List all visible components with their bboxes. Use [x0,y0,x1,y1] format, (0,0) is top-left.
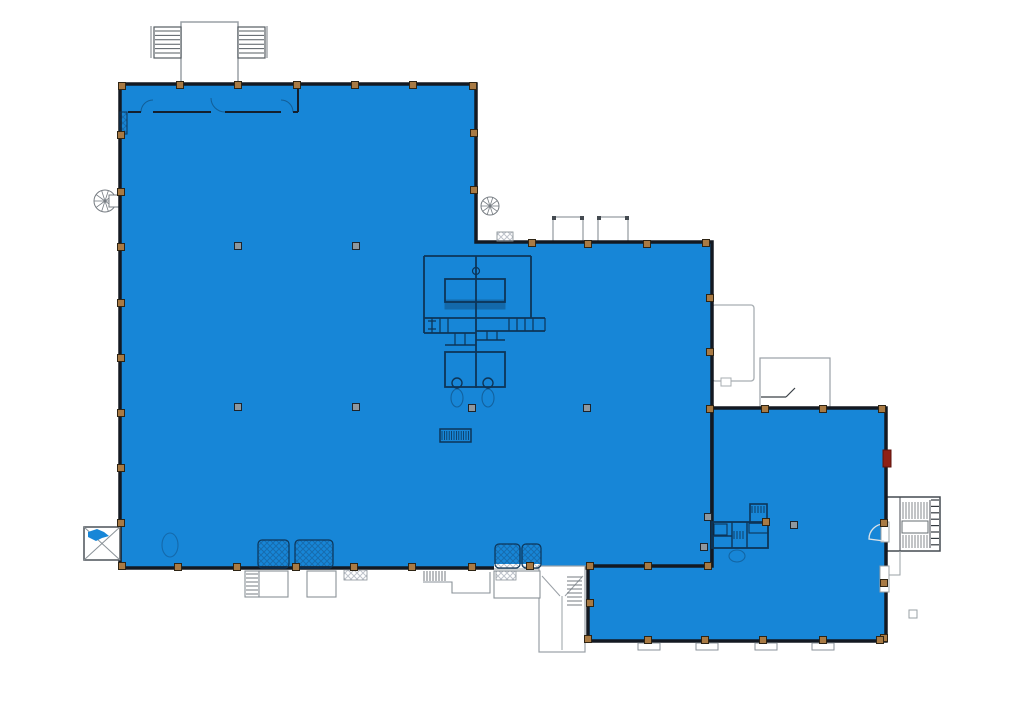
column [879,406,886,413]
column-interior [353,243,360,250]
column [119,563,126,570]
column [471,187,478,194]
floor-plan-drawing [0,0,1024,727]
column [707,349,714,356]
balcony-post [625,216,629,220]
column-interior [235,404,242,411]
ramp-zone-hatch [295,540,333,568]
column [118,244,125,251]
column [119,83,126,90]
column [118,189,125,196]
balcony-post [597,216,601,220]
column [118,520,125,527]
footing-tab [755,643,777,650]
column-interior [705,514,712,521]
column [881,580,888,587]
column [645,563,652,570]
footing-tab [638,643,660,650]
column [587,563,594,570]
column [702,637,709,644]
column [471,130,478,137]
fire-shutter [883,450,891,467]
column [644,241,651,248]
column [294,82,301,89]
floor-area-main[interactable] [120,84,712,568]
column [585,241,592,248]
column [707,295,714,302]
column [763,519,770,526]
column [529,240,536,247]
column [352,82,359,89]
ramp-zone-hatch [495,544,520,568]
column [177,82,184,89]
small-pad [909,610,917,618]
floor-plan-stage [0,0,1024,727]
drawing-root [84,22,940,652]
roof-stair-landing [181,22,238,84]
column [762,406,769,413]
balcony-post [552,216,556,220]
column [118,410,125,417]
column [351,564,358,571]
east-court-tab [721,378,731,386]
dock-hatch-strip [496,571,516,580]
column [469,564,476,571]
column [175,564,182,571]
balcony-east [598,217,628,242]
column [470,83,477,90]
column [234,564,241,571]
column [703,240,710,247]
column [705,563,712,570]
balcony-west [553,217,583,242]
column [410,82,417,89]
column [409,564,416,571]
column [760,637,767,644]
column [118,300,125,307]
tower-landing [902,521,928,533]
balcony-post [580,216,584,220]
column-interior [791,522,798,529]
dock-platform [259,571,288,597]
dock-hatch-strip [344,570,367,580]
column [881,520,888,527]
east-court-structure [712,305,754,381]
roof-hatch [497,232,513,241]
dock-stair-block [245,571,259,597]
column [877,637,884,644]
column-interior [235,243,242,250]
column [707,406,714,413]
ramp-zone-hatch [258,540,289,568]
column [118,132,125,139]
column [527,563,534,570]
column [118,355,125,362]
column [235,82,242,89]
column [820,406,827,413]
column-interior [353,404,360,411]
column [645,637,652,644]
footing-tab [696,643,718,650]
dock-platform [307,571,336,597]
column-interior [469,405,476,412]
column [118,465,125,472]
column [293,564,300,571]
column [587,600,594,607]
footing-tab [812,643,834,650]
elevator-wall-band [445,300,505,309]
column [820,637,827,644]
column-interior [701,544,708,551]
column-interior [584,405,591,412]
column [585,636,592,643]
east-annex [760,358,830,408]
wall-ladder [120,112,127,134]
